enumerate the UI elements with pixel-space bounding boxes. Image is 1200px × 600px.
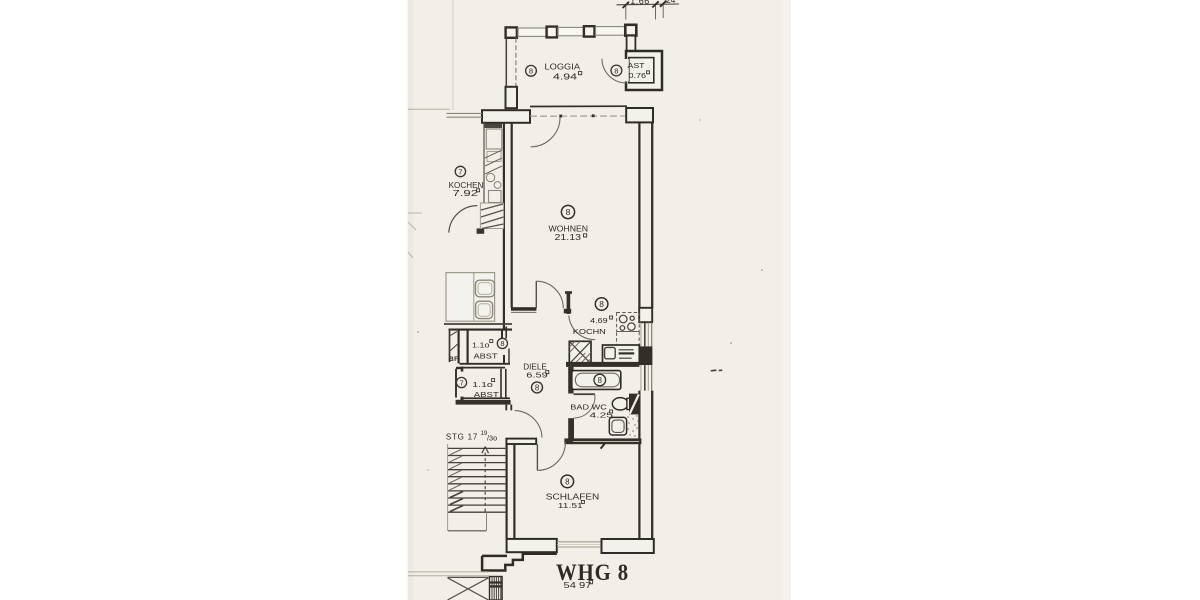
svg-text:KOCHN: KOCHN (573, 327, 606, 336)
svg-text:4.94: 4.94 (553, 73, 578, 82)
svg-text:LOGGIA: LOGGIA (545, 63, 581, 72)
svg-text:8: 8 (529, 67, 533, 76)
svg-text:SCHLAFEN: SCHLAFEN (546, 492, 600, 501)
svg-text:1.1o: 1.1o (472, 380, 493, 389)
svg-text:BF: BF (449, 356, 459, 363)
svg-text:6.59: 6.59 (526, 371, 548, 380)
svg-text:54 97: 54 97 (564, 581, 593, 590)
svg-text:8: 8 (566, 207, 571, 217)
svg-text:7: 7 (459, 378, 463, 387)
svg-text:8: 8 (535, 383, 539, 392)
svg-text:0.76: 0.76 (629, 73, 647, 80)
svg-text:AST: AST (628, 61, 646, 70)
svg-text:ABST: ABST (474, 351, 498, 360)
svg-text:21.13: 21.13 (555, 233, 582, 242)
svg-text:4.69: 4.69 (590, 316, 608, 325)
svg-text:11.51: 11.51 (558, 501, 583, 510)
svg-text:.24: .24 (664, 0, 676, 5)
svg-text:1.1o: 1.1o (472, 341, 490, 350)
svg-text:7.92: 7.92 (453, 189, 479, 198)
svg-text:8: 8 (599, 299, 604, 309)
svg-text:/3o: /3o (487, 433, 497, 442)
svg-text:7: 7 (458, 167, 462, 176)
svg-text:8: 8 (500, 339, 504, 348)
svg-text:1.66: 1.66 (630, 0, 650, 6)
svg-text:8: 8 (565, 477, 570, 486)
svg-text:8: 8 (614, 66, 618, 75)
svg-text:STG 17: STG 17 (446, 432, 478, 441)
svg-text:8: 8 (598, 376, 602, 385)
